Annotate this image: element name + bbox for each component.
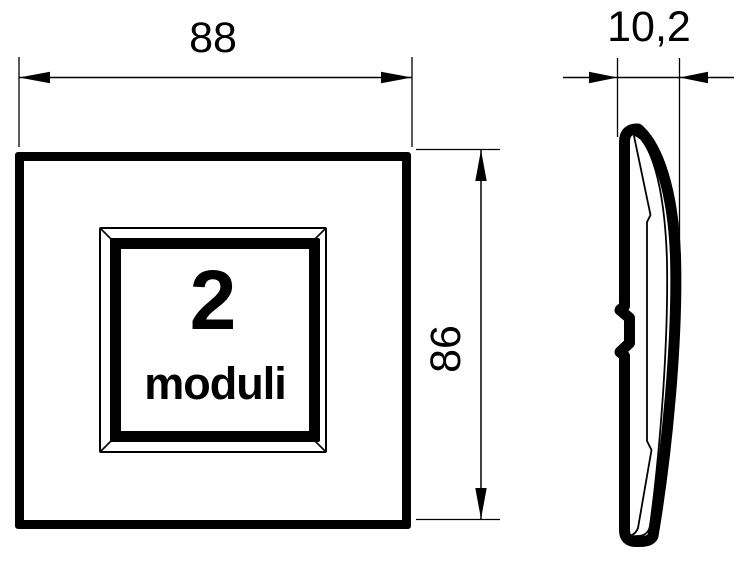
side-profile-outline — [620, 129, 676, 542]
width-dimension-lines — [19, 57, 412, 147]
arrow-left-icon — [680, 72, 709, 83]
height-dimension-lines — [416, 150, 500, 520]
arrow-up-icon — [475, 150, 486, 181]
arrow-right-icon — [589, 72, 618, 83]
technical-drawing-canvas: 2 moduli 88 86 10,2 — [0, 0, 737, 561]
arrow-right-icon — [381, 72, 412, 83]
window-bevel-diagonals — [100, 228, 326, 452]
side-view-profile — [620, 129, 676, 542]
arrow-down-icon — [475, 488, 486, 519]
arrow-left-icon — [19, 72, 50, 83]
dimension-linework — [0, 0, 737, 561]
